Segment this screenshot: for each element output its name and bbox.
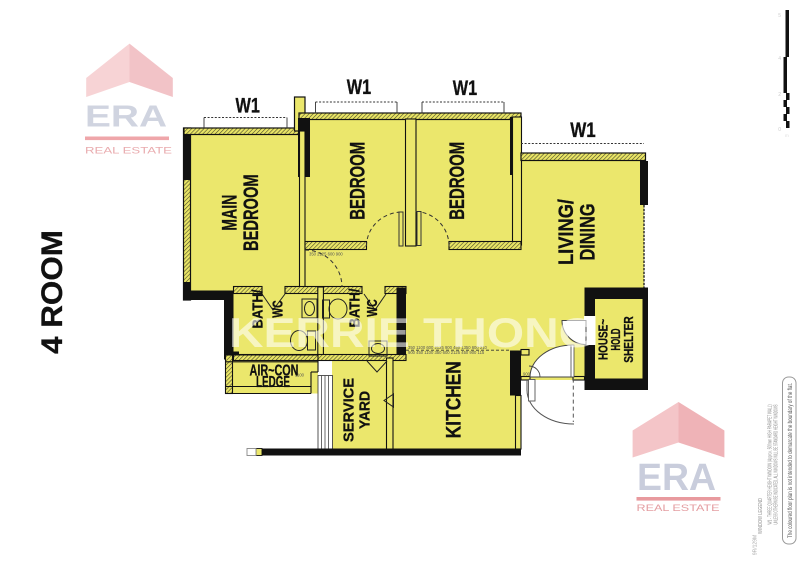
- svg-text:DINING: DINING: [576, 204, 600, 261]
- svg-text:W1: W1: [453, 77, 478, 100]
- svg-text:2: 2: [778, 92, 781, 98]
- svg-text:KERRIE THONG: KERRIE THONG: [229, 309, 596, 356]
- svg-text:W1: W1: [236, 94, 261, 117]
- svg-text:ERA: ERA: [637, 457, 716, 499]
- svg-text:SHELTER: SHELTER: [621, 316, 636, 363]
- svg-text:WINDOW LEGEND: WINDOW LEGEND: [758, 498, 764, 534]
- svg-text:BEDROOM: BEDROOM: [445, 142, 469, 220]
- svg-text:W1: W1: [347, 76, 372, 99]
- svg-text:0: 0: [778, 127, 781, 133]
- svg-text:5: 5: [778, 13, 781, 19]
- svg-text:YARD: YARD: [357, 391, 374, 429]
- svg-text:9R/129M: 9R/129M: [753, 535, 759, 555]
- svg-text:4 ROOM: 4 ROOM: [36, 230, 69, 354]
- svg-text:BEDROOM: BEDROOM: [346, 142, 370, 220]
- svg-text:KITCHEN: KITCHEN: [441, 361, 465, 438]
- svg-text:The coloured floor plan is not: The coloured floor plan is not intended …: [787, 383, 794, 538]
- svg-text:BEDROOM: BEDROOM: [239, 174, 263, 251]
- svg-text:W1: W1: [570, 119, 596, 142]
- svg-text:REAL ESTATE: REAL ESTATE: [637, 503, 720, 514]
- svg-text:LIVING/: LIVING/: [554, 199, 578, 265]
- svg-text:UNLESS OTHERWISE INDICATED, AL: UNLESS OTHERWISE INDICATED, ALL WINDOWS …: [774, 404, 780, 524]
- svg-text:REAL ESTATE: REAL ESTATE: [85, 146, 172, 156]
- svg-text:4: 4: [778, 56, 781, 62]
- svg-text:SERVICE: SERVICE: [341, 378, 358, 442]
- svg-text:ERA: ERA: [85, 99, 167, 134]
- svg-text:m: m: [785, 133, 789, 138]
- svg-text:MAIN: MAIN: [218, 195, 242, 231]
- svg-text:LEDGE: LEDGE: [256, 374, 290, 391]
- svg-text:350 2125 600 900: 350 2125 600 900: [309, 252, 343, 257]
